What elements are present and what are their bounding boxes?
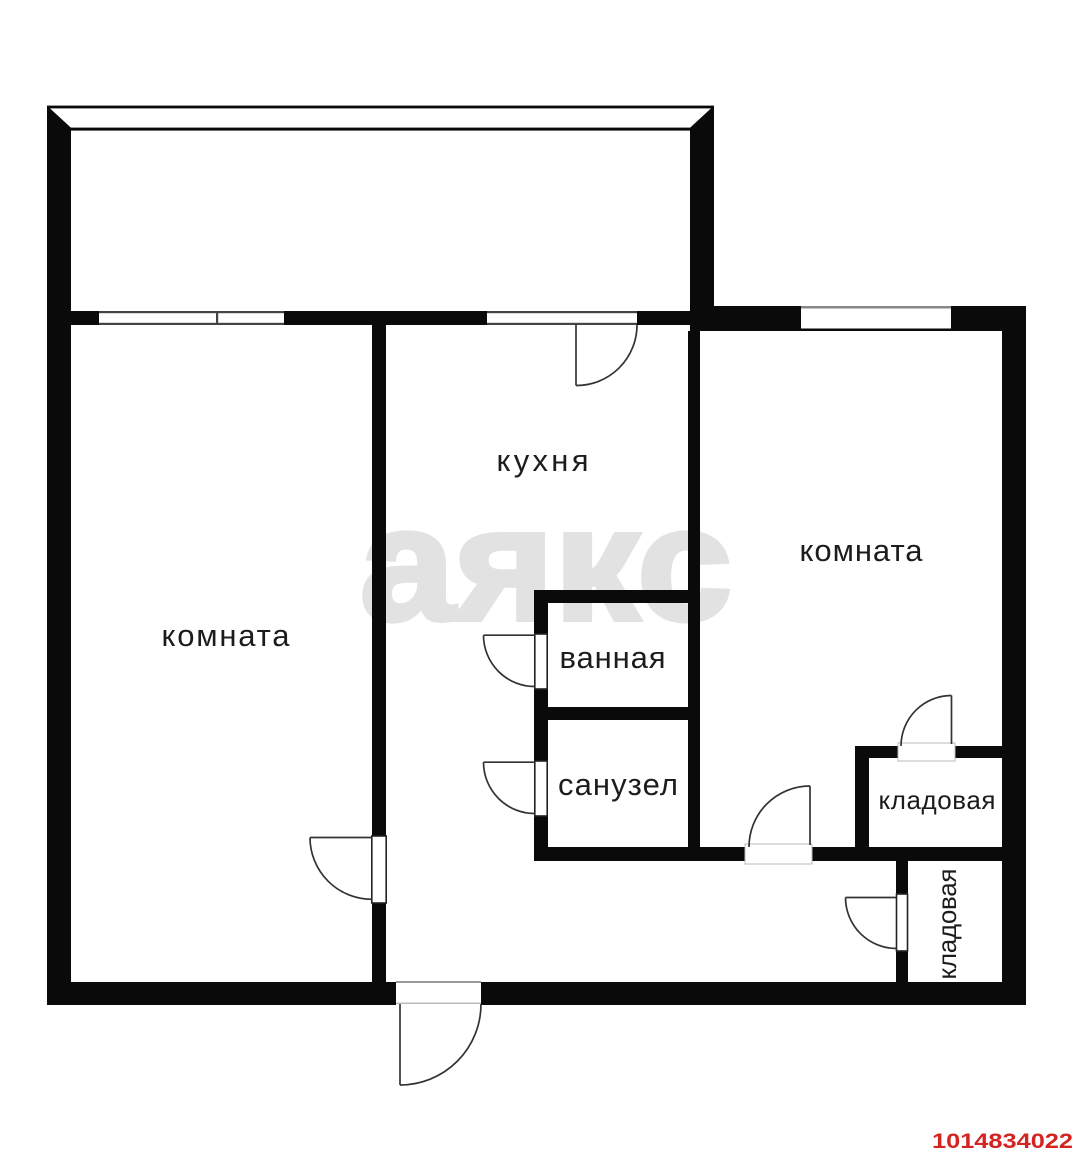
svg-text:комната: комната bbox=[162, 618, 291, 653]
svg-text:кухня: кухня bbox=[497, 443, 589, 478]
svg-text:комната: комната bbox=[800, 533, 924, 568]
svg-text:ванная: ванная bbox=[560, 640, 666, 675]
svg-text:кладовая: кладовая bbox=[932, 869, 962, 980]
svg-text:санузел: санузел bbox=[558, 767, 678, 802]
svg-text:1014834022: 1014834022 bbox=[932, 1130, 1073, 1153]
svg-text:кладовая: кладовая bbox=[879, 785, 996, 815]
